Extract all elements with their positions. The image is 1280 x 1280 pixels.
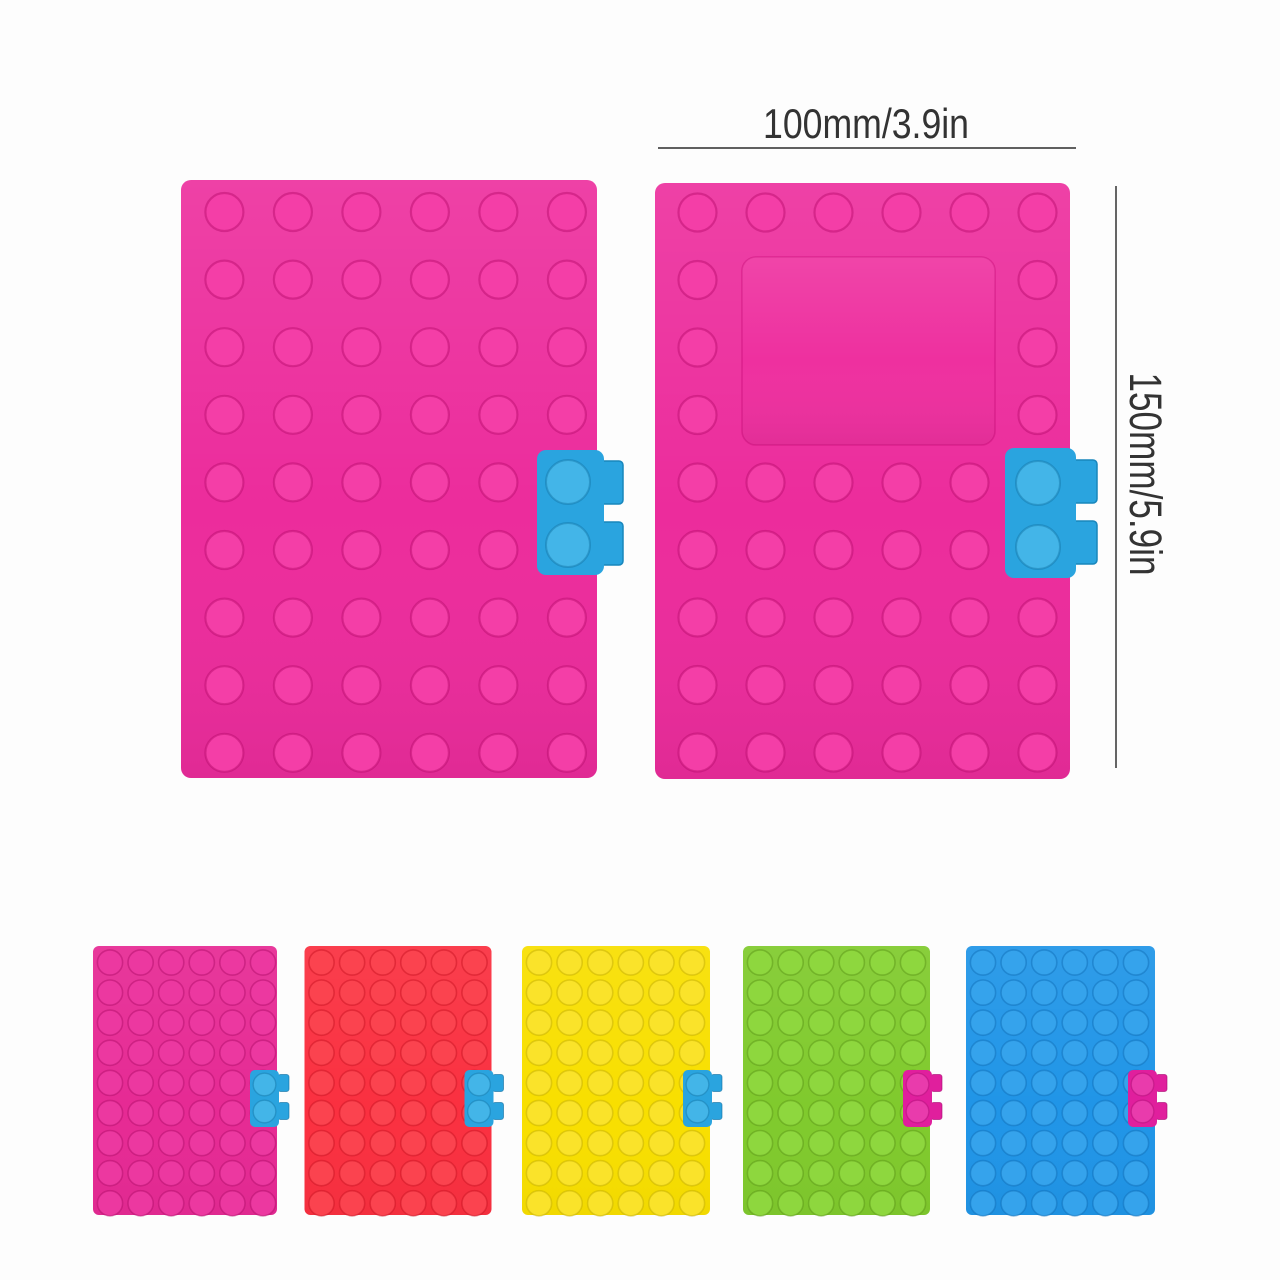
svg-text:150mm/5.9in: 150mm/5.9in (1120, 373, 1171, 576)
svg-text:100mm/3.9in: 100mm/3.9in (763, 100, 969, 147)
